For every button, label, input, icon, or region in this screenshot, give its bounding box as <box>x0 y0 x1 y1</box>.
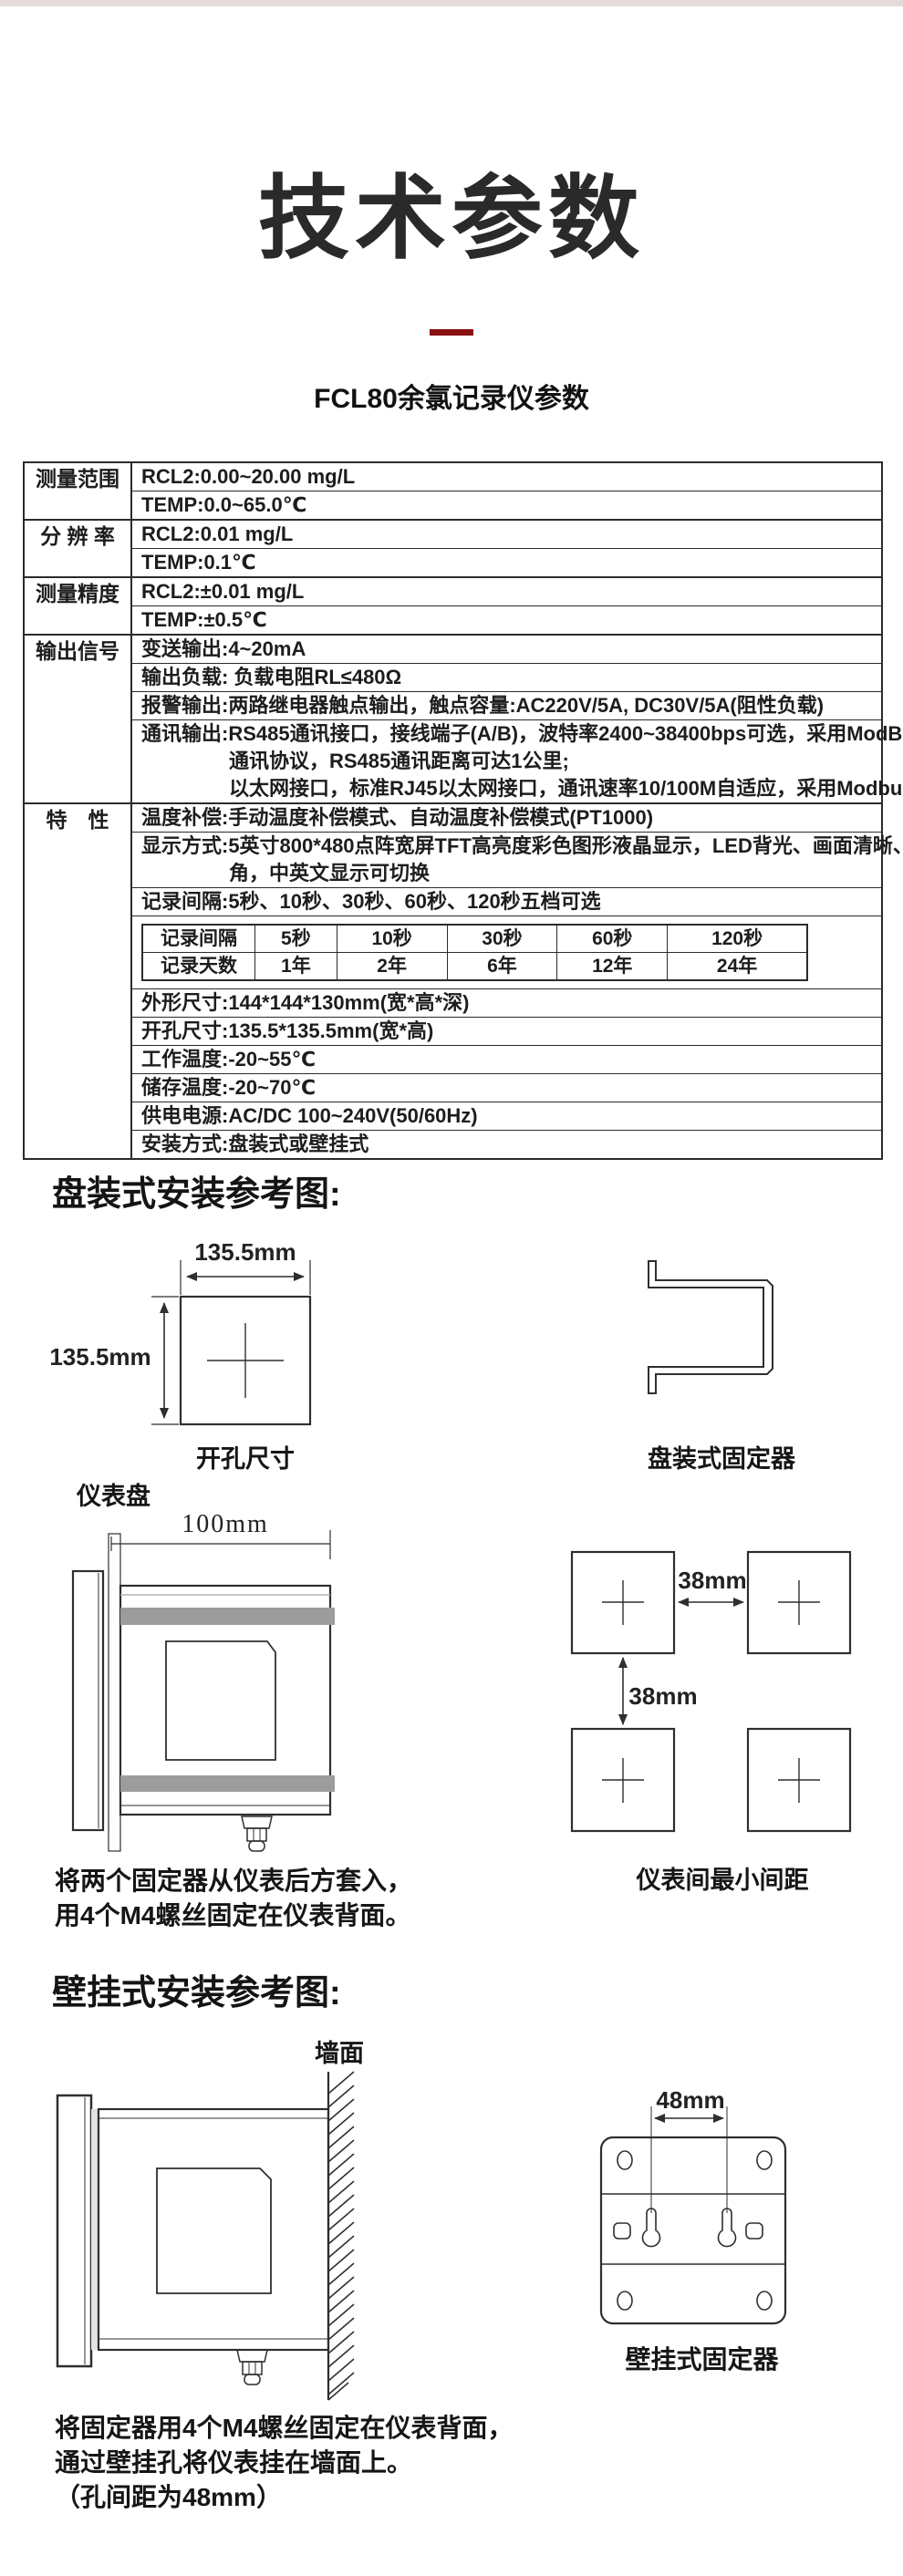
table-row: 外形尺寸:144*144*130mm(宽*高*深) <box>24 989 882 1018</box>
table-row: 工作温度:-20~55℃ <box>24 1046 882 1074</box>
display-line-1: 显示方式:5英寸800*480点阵宽屏TFT高亮度彩色图形液晶显示，LED背光、… <box>141 833 881 860</box>
table-row: 安装方式:盘装式或壁挂式 <box>24 1131 882 1160</box>
cable-gland <box>242 1816 272 1851</box>
panel-bracket-drawing <box>649 1261 773 1393</box>
row-label-resolution: 分 辨 率 <box>24 520 131 577</box>
record-header-row: 记录间隔 5秒 10秒 30秒 60秒 120秒 <box>142 925 807 953</box>
gap-h-dim: 38mm <box>675 1567 750 1595</box>
cell-display-mode: 显示方式:5英寸800*480点阵宽屏TFT高亮度彩色图形液晶显示，LED背光、… <box>131 833 882 888</box>
comm-line-3: 以太网接口，标准RJ45以太网接口，通讯速率10/100M自适应，采用Modbu… <box>141 775 881 802</box>
rec-h0: 记录间隔 <box>142 925 255 953</box>
gap-v-dim: 38mm <box>628 1682 699 1711</box>
rec-d2: 2年 <box>337 953 447 981</box>
cell-range-rcl2: RCL2:0.00~20.00 mg/L <box>131 462 882 491</box>
table-row: 显示方式:5英寸800*480点阵宽屏TFT高亮度彩色图形液晶显示，LED背光、… <box>24 833 882 888</box>
wall-mount-heading: 壁挂式安装参考图: <box>52 1973 341 2013</box>
wall-side-view-drawing <box>57 2095 328 2385</box>
rec-h3: 30秒 <box>447 925 557 953</box>
table-row: 测量精度 RCL2:±0.01 mg/L <box>24 577 882 606</box>
page-subtitle: FCL80余氯记录仪参数 <box>0 376 903 416</box>
cutout-width-dim: 135.5mm <box>181 1238 310 1267</box>
wall-plate-drawing <box>601 2106 785 2323</box>
depth-dim: 100mm <box>175 1510 275 1539</box>
comm-line-1: 通讯输出:RS485通讯接口，接线端子(A/B)，波特率2400~38400bp… <box>141 720 881 748</box>
table-row: 储存温度:-20~70℃ <box>24 1074 882 1102</box>
rec-h4: 60秒 <box>557 925 668 953</box>
row-label-output-signal: 输出信号 <box>24 635 131 803</box>
cell-power-supply: 供电电源:AC/DC 100~240V(50/60Hz) <box>131 1102 882 1131</box>
cell-temp-compensation: 温度补偿:手动温度补偿模式、自动温度补偿模式(PT1000) <box>131 803 882 833</box>
table-row: 开孔尺寸:135.5*135.5mm(宽*高) <box>24 1018 882 1046</box>
record-interval-table: 记录间隔 5秒 10秒 30秒 60秒 120秒 记录天数 1年 2年 6年 1… <box>141 924 808 981</box>
table-row: TEMP:0.0~65.0℃ <box>24 491 882 521</box>
table-row: 通讯输出:RS485通讯接口，接线端子(A/B)，波特率2400~38400bp… <box>24 720 882 804</box>
rec-d5: 24年 <box>668 953 807 981</box>
row-label-accuracy: 测量精度 <box>24 577 131 635</box>
spec-sheet-page: 技术参数 FCL80余氯记录仪参数 测量范围 RCL2:0.00~20.00 m… <box>0 0 903 2576</box>
panel-mount-heading: 盘装式安装参考图: <box>52 1174 341 1215</box>
wall-drawing <box>328 2072 354 2400</box>
panel-label: 仪表盘 <box>77 1476 177 1512</box>
cell-record-table: 记录间隔 5秒 10秒 30秒 60秒 120秒 记录天数 1年 2年 6年 1… <box>131 916 882 989</box>
cutout-square-drawing <box>151 1260 310 1424</box>
comm-line-2: 通讯协议，RS485通讯距离可达1公里; <box>141 748 881 775</box>
cutout-caption: 开孔尺寸 <box>181 1439 310 1474</box>
rec-d1: 1年 <box>255 953 337 981</box>
rec-d3: 6年 <box>447 953 557 981</box>
table-row: 报警输出:两路继电器触点输出，触点容量:AC220V/5A, DC30V/5A(… <box>24 692 882 720</box>
panel-note-line-1: 将两个固定器从仪表后方套入， <box>55 1866 412 1897</box>
cell-cutout-size: 开孔尺寸:135.5*135.5mm(宽*高) <box>131 1018 882 1046</box>
wall-bracket-caption: 壁挂式固定器 <box>595 2340 809 2376</box>
row-label-measure-range: 测量范围 <box>24 462 131 520</box>
panel-mount-diagram <box>36 1236 885 1865</box>
table-row: 输出负载: 负载电阻RL≤480Ω <box>24 664 882 692</box>
cell-dimensions: 外形尺寸:144*144*130mm(宽*高*深) <box>131 989 882 1018</box>
table-row: 测量范围 RCL2:0.00~20.00 mg/L <box>24 462 882 491</box>
table-row: 输出信号 变送输出:4~20mA <box>24 635 882 664</box>
record-days-row: 记录天数 1年 2年 6年 12年 24年 <box>142 953 807 981</box>
table-row: 记录间隔 5秒 10秒 30秒 60秒 120秒 记录天数 1年 2年 6年 1… <box>24 916 882 989</box>
panel-note-line-2: 用4个M4螺丝固定在仪表背面。 <box>55 1900 410 1931</box>
cell-working-temp: 工作温度:-20~55℃ <box>131 1046 882 1074</box>
wall-note-line-1: 将固定器用4个M4螺丝固定在仪表背面， <box>55 2413 513 2444</box>
rec-h1: 5秒 <box>255 925 337 953</box>
cell-storage-temp: 储存温度:-20~70℃ <box>131 1074 882 1102</box>
wall-note-line-2: 通过壁挂孔将仪表挂在墙面上。 <box>55 2447 412 2478</box>
panel-bracket-caption: 盘装式固定器 <box>589 1439 854 1474</box>
spacing-caption: 仪表间最小间距 <box>593 1860 852 1896</box>
panel-side-view-drawing <box>73 1530 335 1851</box>
table-row: 记录间隔:5秒、10秒、30秒、60秒、120秒五档可选 <box>24 888 882 916</box>
rec-d4: 12年 <box>557 953 668 981</box>
cell-acc-temp: TEMP:±0.5℃ <box>131 606 882 636</box>
cell-output-load: 输出负载: 负载电阻RL≤480Ω <box>131 664 882 692</box>
table-row: 供电电源:AC/DC 100~240V(50/60Hz) <box>24 1102 882 1131</box>
rec-d0: 记录天数 <box>142 953 255 981</box>
title-accent-dash <box>430 329 473 336</box>
cell-record-interval: 记录间隔:5秒、10秒、30秒、60秒、120秒五档可选 <box>131 888 882 916</box>
cell-transmit-output: 变送输出:4~20mA <box>131 635 882 664</box>
cell-res-temp: TEMP:0.1℃ <box>131 549 882 578</box>
table-row: TEMP:0.1℃ <box>24 549 882 578</box>
cutout-height-dim: 135.5mm <box>42 1343 159 1371</box>
page-title: 技术参数 <box>0 173 903 264</box>
top-accent-strip <box>0 0 903 6</box>
cell-res-rcl2: RCL2:0.01 mg/L <box>131 520 882 549</box>
rec-h2: 10秒 <box>337 925 447 953</box>
cable-gland <box>237 2350 267 2385</box>
spec-table: 测量范围 RCL2:0.00~20.00 mg/L TEMP:0.0~65.0℃… <box>23 461 883 1160</box>
table-row: 分 辨 率 RCL2:0.01 mg/L <box>24 520 882 549</box>
display-line-2: 角，中英文显示可切换 <box>141 860 881 887</box>
cell-alarm-output: 报警输出:两路继电器触点输出，触点容量:AC220V/5A, DC30V/5A(… <box>131 692 882 720</box>
cell-range-temp: TEMP:0.0~65.0℃ <box>131 491 882 521</box>
table-row: 特 性 温度补偿:手动温度补偿模式、自动温度补偿模式(PT1000) <box>24 803 882 833</box>
cell-acc-rcl2: RCL2:±0.01 mg/L <box>131 577 882 606</box>
row-label-features: 特 性 <box>24 803 131 1159</box>
wall-note-line-3: （孔间距为48mm） <box>55 2482 282 2513</box>
cell-mounting: 安装方式:盘装式或壁挂式 <box>131 1131 882 1160</box>
rec-h5: 120秒 <box>668 925 807 953</box>
cell-comm-output: 通讯输出:RS485通讯接口，接线端子(A/B)，波特率2400~38400bp… <box>131 720 882 804</box>
table-row: TEMP:±0.5℃ <box>24 606 882 636</box>
